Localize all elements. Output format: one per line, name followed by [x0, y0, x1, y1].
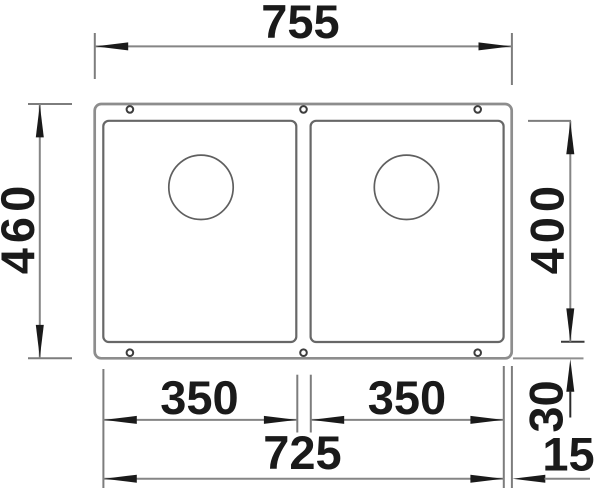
svg-text:755: 755	[261, 0, 339, 48]
svg-text:400: 400	[521, 181, 574, 274]
svg-text:350: 350	[368, 371, 446, 424]
svg-text:15: 15	[542, 428, 594, 481]
svg-text:30: 30	[520, 380, 573, 432]
svg-text:350: 350	[160, 371, 238, 424]
svg-text:725: 725	[263, 426, 341, 479]
svg-text:460: 460	[0, 181, 44, 274]
